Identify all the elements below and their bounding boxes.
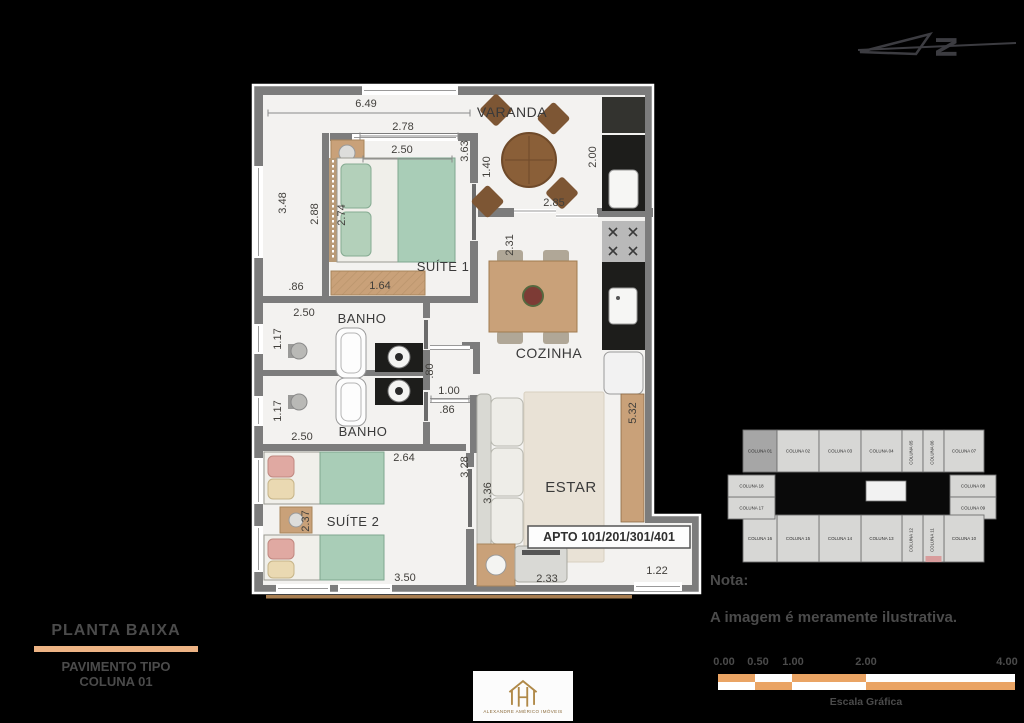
note-body: A imagem é meramente ilustrativa. (710, 609, 1022, 626)
keyplan-unit-label: COLUNA 08 (961, 484, 986, 489)
cooktop (602, 221, 645, 262)
dimension-label: 2.64 (393, 452, 414, 464)
room-label: BANHO (339, 424, 388, 439)
sink (609, 288, 637, 324)
dimension-label: 3.48 (277, 192, 289, 213)
scale-bar: 0.00 0.50 1.00 2.00 4.00 Escala Gráfica (712, 656, 1020, 718)
dimension-label: 1.00 (438, 385, 459, 397)
dimension-label: .86 (288, 281, 303, 293)
dimension-label: 3.63 (459, 140, 471, 161)
dimension-label: 2.33 (536, 573, 557, 585)
keyplan-unit-label: COLUNA 16 (748, 536, 773, 541)
dimension-label: 5.32 (627, 402, 639, 423)
dimension-label: .80 (424, 363, 436, 378)
dimension-label: 1.22 (646, 565, 667, 577)
keyplan-lobby (866, 481, 906, 501)
drawing-title: PLANTA BAIXA (28, 622, 204, 640)
north-arrow: N (858, 34, 1016, 58)
title-block: PLANTA BAIXA PAVIMENTO TIPO COLUNA 01 (28, 622, 204, 689)
keyplan-unit-label: COLUNA 18 (739, 484, 764, 489)
room-label: SUÍTE 2 (327, 514, 380, 529)
dimension-label: 2.50 (293, 307, 314, 319)
dimension-label: 1.17 (272, 400, 284, 421)
keyplan-unit-label: COLUNA 02 (786, 449, 811, 454)
dimension-label: 1.17 (272, 328, 284, 349)
opening (430, 345, 470, 350)
sofa (477, 394, 491, 548)
dimension-label: 3.28 (459, 456, 471, 477)
dimension-label: 2.37 (300, 510, 312, 531)
keyplan-unit-label: COLUNA 09 (961, 506, 986, 511)
keyplan-corridor (743, 472, 984, 515)
keyplan-unit-label: COLUNA 11 (930, 528, 935, 552)
dimension-label: 2.00 (587, 146, 599, 167)
drawing-subtitle-1: PAVIMENTO TIPO (28, 659, 204, 674)
keyplan-unit-label: COLUNA 05 (909, 440, 914, 465)
dimension-label: 2.31 (504, 234, 516, 255)
scale-tick: 2.00 (855, 656, 876, 668)
dimension-label: 3.50 (394, 572, 415, 584)
keyplan-unit-label: COLUNA 04 (869, 449, 894, 454)
dimension-label: 2.88 (309, 203, 321, 224)
room-label: ESTAR (545, 479, 596, 496)
keyplan-unit-label: COLUNA 07 (952, 449, 977, 454)
floor-plan: APTO 101/201/301/401 VARANDASUÍTE 1BANHO… (253, 85, 700, 599)
scale-tick: 4.00 (996, 656, 1017, 668)
dimension-label: 6.49 (355, 98, 376, 110)
room-label: BANHO (338, 311, 387, 326)
keyplan-unit-label: COLUNA 10 (952, 536, 977, 541)
scale-tick: 1.00 (782, 656, 803, 668)
dimension-label: 1.64 (369, 280, 390, 292)
keyplan-unit-label: COLUNA 14 (828, 536, 853, 541)
note-block: Nota: A imagem é meramente ilustrativa. (710, 572, 1022, 626)
keyplan-unit-marker (926, 556, 942, 562)
house-monogram-icon (506, 678, 540, 708)
keyplan-unit-label: COLUNA 15 (786, 536, 811, 541)
room-label: VARANDA (477, 104, 547, 120)
dimension-label: 3.36 (482, 482, 494, 503)
keyplan: COLUNA 01COLUNA 02COLUNA 03COLUNA 04COLU… (728, 430, 996, 562)
dimension-label: 2.74 (336, 204, 348, 225)
dimension-label: 2.50 (291, 431, 312, 443)
agency-logo: ALEXANDRE AMÉRICO IMÓVEIS (473, 671, 573, 721)
apto-label: APTO 101/201/301/401 (543, 530, 675, 544)
balcony-edge (266, 595, 632, 599)
drawing-subtitle-2: COLUNA 01 (28, 674, 204, 689)
scale-tick: 0.00 (713, 656, 734, 668)
keyplan-unit-label: COLUNA 06 (930, 440, 935, 465)
fridge (604, 352, 643, 394)
dimension-label: 2.78 (392, 121, 413, 133)
keyplan-unit-label: COLUNA 12 (909, 527, 914, 552)
scale-tick: 0.50 (747, 656, 768, 668)
keyplan-unit-label: COLUNA 01 (748, 449, 773, 454)
title-underline (34, 646, 198, 652)
canvas: APTO 101/201/301/401 VARANDASUÍTE 1BANHO… (0, 0, 1024, 723)
keyplan-unit-label: COLUNA 13 (869, 536, 894, 541)
north-letter: N (929, 36, 962, 58)
dimension-label: 2.50 (391, 144, 412, 156)
dimension-label: 1.40 (481, 156, 493, 177)
dining-set (489, 250, 577, 344)
scale-caption: Escala Gráfica (830, 696, 902, 708)
dimension-label: 2.85 (543, 197, 564, 209)
dimension-label: .86 (439, 404, 454, 416)
room-label: COZINHA (516, 345, 583, 361)
note-title: Nota: (710, 572, 1022, 589)
agency-name: ALEXANDRE AMÉRICO IMÓVEIS (483, 709, 562, 714)
keyplan-unit-label: COLUNA 03 (828, 449, 853, 454)
keyplan-unit-label: COLUNA 17 (739, 506, 764, 511)
room-label: SUÍTE 1 (417, 259, 470, 274)
